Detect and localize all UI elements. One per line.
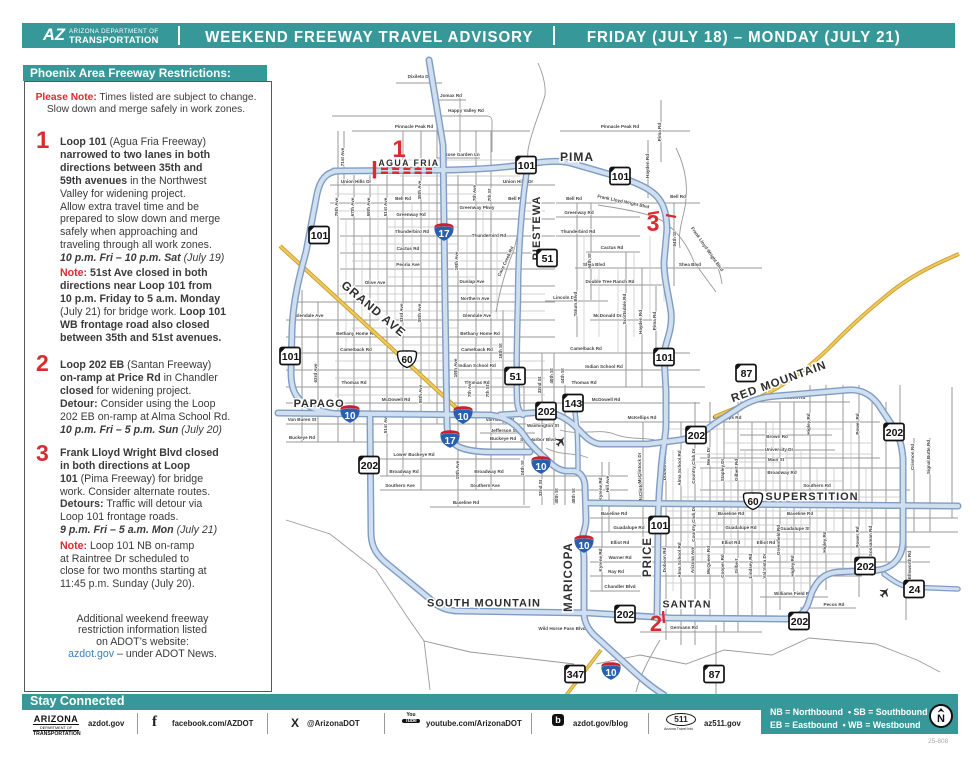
svg-text:143: 143: [565, 398, 583, 410]
svg-text:Pinnacle Peak Rd: Pinnacle Peak Rd: [601, 124, 639, 129]
svg-text:Baseline Rd: Baseline Rd: [787, 511, 813, 516]
svg-text:Germann Rd: Germann Rd: [670, 625, 698, 630]
svg-text:Hayden Rd: Hayden Rd: [645, 154, 650, 178]
svg-text:Union Hills Dr: Union Hills Dr: [341, 179, 372, 184]
svg-text:10: 10: [457, 412, 469, 423]
svg-text:44th St: 44th St: [560, 368, 565, 384]
svg-text:Greenfield Rd: Greenfield Rd: [776, 525, 781, 555]
svg-text:101: 101: [518, 160, 536, 172]
svg-text:Pecos Rd: Pecos Rd: [824, 602, 845, 607]
svg-text:32nd St: 32nd St: [538, 479, 543, 496]
svg-text:Greenway Pkwy: Greenway Pkwy: [460, 205, 495, 210]
svg-text:Williams Field Rd: Williams Field Rd: [774, 591, 812, 596]
svg-text:Gilbert Rd: Gilbert Rd: [734, 459, 739, 481]
svg-text:Hill Ave: Hill Ave: [605, 475, 610, 492]
svg-text:7th St: 7th St: [485, 384, 490, 397]
svg-text:Shea Blvd: Shea Blvd: [679, 262, 701, 267]
svg-text:Bell Rd: Bell Rd: [566, 196, 582, 201]
svg-text:Gilbert: Gilbert: [734, 558, 739, 573]
svg-text:347: 347: [567, 669, 585, 681]
svg-text:71st Ave: 71st Ave: [340, 147, 345, 166]
svg-text:McClintock Dr: McClintock Dr: [637, 452, 642, 483]
svg-text:Indian School Rd: Indian School Rd: [458, 363, 496, 368]
svg-text:Cooper Rd: Cooper Rd: [720, 554, 725, 578]
svg-text:Washington St: Washington St: [527, 423, 559, 428]
svg-text:Scottsdale Rd: Scottsdale Rd: [622, 293, 627, 324]
svg-text:Glendale Ave: Glendale Ave: [295, 313, 324, 318]
svg-text:60: 60: [401, 355, 413, 366]
svg-text:2: 2: [650, 611, 662, 636]
svg-text:87: 87: [709, 669, 721, 681]
svg-text:Val Vista Dr: Val Vista Dr: [762, 553, 767, 578]
svg-text:Ellsworth Rd: Ellsworth Rd: [907, 551, 912, 579]
svg-text:Thunderbird Rd: Thunderbird Rd: [395, 229, 430, 234]
svg-text:59th Ave: 59th Ave: [366, 197, 371, 216]
svg-text:7th Ave: 7th Ave: [472, 184, 477, 201]
svg-text:Dobson Rd: Dobson Rd: [662, 548, 667, 573]
svg-text:Broadway Rd: Broadway Rd: [474, 469, 504, 474]
svg-text:Country Club Dr: Country Club Dr: [691, 506, 696, 542]
svg-text:Glendale Ave: Glendale Ave: [463, 313, 492, 318]
svg-text:Pima Rd: Pima Rd: [657, 123, 662, 142]
svg-text:Mesa Dr: Mesa Dr: [706, 447, 711, 465]
svg-text:Baseline Rd: Baseline Rd: [453, 500, 479, 505]
svg-text:10: 10: [535, 462, 547, 473]
svg-text:Alma School Rd: Alma School Rd: [677, 450, 682, 485]
svg-text:64th St: 64th St: [587, 253, 592, 269]
svg-text:Power Rd: Power Rd: [855, 413, 860, 434]
svg-text:Cactus Rd: Cactus Rd: [601, 245, 624, 250]
svg-text:Broadway Rd: Broadway Rd: [767, 470, 797, 475]
svg-text:Bell Rd: Bell Rd: [670, 194, 686, 199]
svg-text:McQueen Rd: McQueen Rd: [706, 546, 711, 574]
svg-text:10: 10: [344, 411, 356, 422]
svg-text:202: 202: [857, 561, 875, 573]
svg-text:University Dr: University Dr: [765, 447, 794, 452]
svg-text:67th Ave: 67th Ave: [350, 197, 355, 216]
svg-text:PAPAGO: PAPAGO: [294, 398, 345, 410]
svg-text:Chandler Blvd: Chandler Blvd: [604, 584, 635, 589]
svg-text:Elliot Rd: Elliot Rd: [611, 540, 630, 545]
svg-text:Greenway Rd: Greenway Rd: [564, 210, 594, 215]
svg-text:32nd St: 32nd St: [537, 376, 542, 393]
svg-text:Camelback Rd: Camelback Rd: [570, 346, 602, 351]
svg-text:Camelback Rd: Camelback Rd: [461, 347, 493, 352]
svg-text:19th Ave: 19th Ave: [455, 460, 460, 479]
svg-text:51: 51: [542, 253, 554, 265]
svg-text:Southern Rd: Southern Rd: [803, 483, 831, 488]
svg-text:Brown Rd: Brown Rd: [766, 434, 788, 439]
svg-text:Happy Valley Rd: Happy Valley Rd: [448, 108, 484, 113]
svg-text:202: 202: [538, 406, 556, 418]
svg-text:51st Ave: 51st Ave: [383, 197, 388, 216]
svg-text:19th Ave: 19th Ave: [454, 251, 459, 270]
svg-text:63rd Ave: 63rd Ave: [313, 363, 318, 383]
svg-text:Southern Ave: Southern Ave: [385, 483, 415, 488]
svg-text:Jomax Rd: Jomax Rd: [440, 93, 462, 98]
svg-text:Union Hills Dr: Union Hills Dr: [503, 179, 534, 184]
svg-text:Dixileta Dr: Dixileta Dr: [408, 74, 431, 79]
svg-text:Main St: Main St: [768, 457, 785, 462]
svg-text:75th Ave: 75th Ave: [334, 197, 339, 216]
svg-text:Indian School Rd: Indian School Rd: [585, 364, 623, 369]
svg-text:Dunlap Ave: Dunlap Ave: [460, 279, 485, 284]
svg-text:Double Tree Ranch Rd: Double Tree Ranch Rd: [585, 279, 634, 284]
svg-text:N: N: [937, 713, 945, 725]
svg-text:16th St: 16th St: [498, 343, 503, 359]
svg-text:24: 24: [909, 584, 921, 596]
svg-text:Bethany Home Rd: Bethany Home Rd: [460, 331, 500, 336]
svg-text:MARICOPA: MARICOPA: [563, 542, 575, 612]
svg-text:SANTAN: SANTAN: [663, 599, 712, 611]
svg-text:101: 101: [651, 520, 669, 532]
svg-text:202: 202: [791, 616, 809, 628]
svg-text:60: 60: [747, 497, 759, 508]
svg-text:35th Ave: 35th Ave: [417, 180, 422, 199]
svg-text:Sossaman Rd: Sossaman Rd: [868, 526, 873, 557]
svg-text:Thunderbird Rd: Thunderbird Rd: [561, 229, 596, 234]
svg-text:Wild Horse Pass Blvd: Wild Horse Pass Blvd: [538, 626, 585, 631]
svg-text:Power Rd: Power Rd: [855, 526, 860, 547]
svg-text:87: 87: [741, 368, 753, 380]
svg-text:202: 202: [361, 460, 379, 472]
svg-text:Pinnacle Peak Rd: Pinnacle Peak Rd: [395, 124, 433, 129]
svg-text:19th Ave: 19th Ave: [453, 358, 458, 377]
svg-text:Crismon Rd: Crismon Rd: [910, 444, 915, 470]
svg-text:Higley Rd: Higley Rd: [806, 413, 811, 434]
svg-text:Country Club Dr: Country Club Dr: [691, 448, 696, 484]
svg-text:Pima Rd: Pima Rd: [652, 312, 657, 331]
svg-text:101: 101: [311, 230, 329, 242]
svg-text:Buckeye Rd: Buckeye Rd: [490, 436, 516, 441]
svg-text:43rd Ave: 43rd Ave: [399, 303, 404, 323]
svg-text:Broadway Rd: Broadway Rd: [389, 469, 419, 474]
svg-text:Van Buren St: Van Buren St: [288, 417, 317, 422]
svg-text:35th Ave: 35th Ave: [417, 303, 422, 322]
svg-text:Southern Ave: Southern Ave: [470, 483, 500, 488]
svg-text:101: 101: [282, 351, 300, 363]
svg-text:Kyrene Rd: Kyrene Rd: [598, 548, 603, 571]
svg-text:101: 101: [656, 352, 674, 364]
svg-text:Frank Lloyd Wright Blvd: Frank Lloyd Wright Blvd: [597, 194, 650, 210]
svg-text:SOUTH MOUNTAIN: SOUTH MOUNTAIN: [427, 598, 541, 610]
svg-text:40th St: 40th St: [549, 368, 554, 384]
svg-text:Baseline Rd: Baseline Rd: [718, 511, 744, 516]
svg-text:3: 3: [647, 210, 660, 236]
svg-text:Alma School Rd: Alma School Rd: [677, 542, 682, 577]
svg-text:Peoria Ave: Peoria Ave: [396, 262, 420, 267]
svg-text:24th St: 24th St: [520, 460, 525, 476]
svg-text:SUPERSTITION: SUPERSTITION: [765, 491, 858, 503]
svg-text:Warner Rd: Warner Rd: [608, 555, 631, 560]
svg-text:202: 202: [688, 430, 706, 442]
svg-text:Cactus Rd: Cactus Rd: [397, 246, 420, 251]
svg-text:Guadalupe Rd: Guadalupe Rd: [725, 525, 756, 530]
svg-text:Kyrene Rd: Kyrene Rd: [598, 477, 603, 500]
svg-text:McDowell Rd: McDowell Rd: [592, 397, 621, 402]
svg-text:McDonald Dr.: McDonald Dr.: [593, 313, 622, 318]
svg-text:51: 51: [510, 371, 522, 383]
svg-text:94th St: 94th St: [672, 231, 677, 247]
svg-text:Bethany Home Rd: Bethany Home Rd: [336, 331, 376, 336]
svg-text:Hayden Rd: Hayden Rd: [638, 310, 643, 334]
svg-text:Guadalupe Rd: Guadalupe Rd: [613, 525, 644, 530]
svg-text:48th St: 48th St: [571, 488, 576, 504]
svg-text:10: 10: [578, 541, 590, 552]
svg-text:Higley Rd: Higley Rd: [790, 555, 795, 576]
svg-text:Lindsey Rd: Lindsey Rd: [748, 553, 753, 578]
svg-text:Buckeye Rd: Buckeye Rd: [289, 435, 315, 440]
svg-text:Stapley Dr: Stapley Dr: [720, 458, 725, 481]
svg-text:Thomas Rd: Thomas Rd: [571, 380, 596, 385]
svg-text:Greenway Rd: Greenway Rd: [396, 212, 426, 217]
svg-text:17: 17: [438, 229, 450, 240]
svg-text:Higley Rd: Higley Rd: [822, 531, 827, 552]
svg-text:Elliot Rd: Elliot Rd: [722, 540, 741, 545]
svg-text:Northern Ave: Northern Ave: [461, 296, 490, 301]
svg-text:40th St: 40th St: [554, 488, 559, 504]
svg-text:Lower Buckeye Rd: Lower Buckeye Rd: [393, 452, 434, 457]
svg-text:AGUA FRIA: AGUA FRIA: [378, 158, 439, 168]
svg-text:Elliot Rd: Elliot Rd: [757, 540, 776, 545]
svg-text:Ray Rd: Ray Rd: [608, 569, 624, 574]
svg-text:55th Ave: 55th Ave: [418, 384, 423, 403]
svg-text:Thomas Rd: Thomas Rd: [341, 380, 366, 385]
svg-text:10: 10: [605, 668, 617, 679]
svg-text:202: 202: [886, 427, 904, 439]
svg-text:101: 101: [612, 171, 630, 183]
svg-text:Rose Garden Ln: Rose Garden Ln: [444, 152, 480, 157]
svg-text:Thunderbird Rd: Thunderbird Rd: [472, 233, 507, 238]
svg-text:McKellips Rd: McKellips Rd: [628, 415, 657, 420]
svg-text:Arizona Ave: Arizona Ave: [690, 546, 695, 573]
svg-text:Signal Butte Rd: Signal Butte Rd: [926, 440, 931, 474]
svg-text:202: 202: [617, 609, 635, 621]
svg-text:Baseline Rd: Baseline Rd: [601, 511, 627, 516]
svg-text:Olive Ave: Olive Ave: [365, 280, 386, 285]
svg-text:17: 17: [444, 436, 456, 447]
svg-text:Bell Rd: Bell Rd: [395, 196, 411, 201]
svg-text:Tatum Blvd: Tatum Blvd: [573, 291, 578, 316]
svg-text:7th Ave: 7th Ave: [467, 380, 472, 397]
svg-text:7th St: 7th St: [487, 188, 492, 201]
svg-text:PRICE: PRICE: [642, 537, 654, 577]
svg-text:1: 1: [392, 136, 405, 163]
svg-text:PIMA: PIMA: [560, 150, 594, 164]
svg-text:Camelback Rd: Camelback Rd: [340, 347, 372, 352]
svg-text:McDowell Rd: McDowell Rd: [382, 397, 411, 402]
svg-text:Guadalupe St: Guadalupe St: [780, 526, 810, 531]
